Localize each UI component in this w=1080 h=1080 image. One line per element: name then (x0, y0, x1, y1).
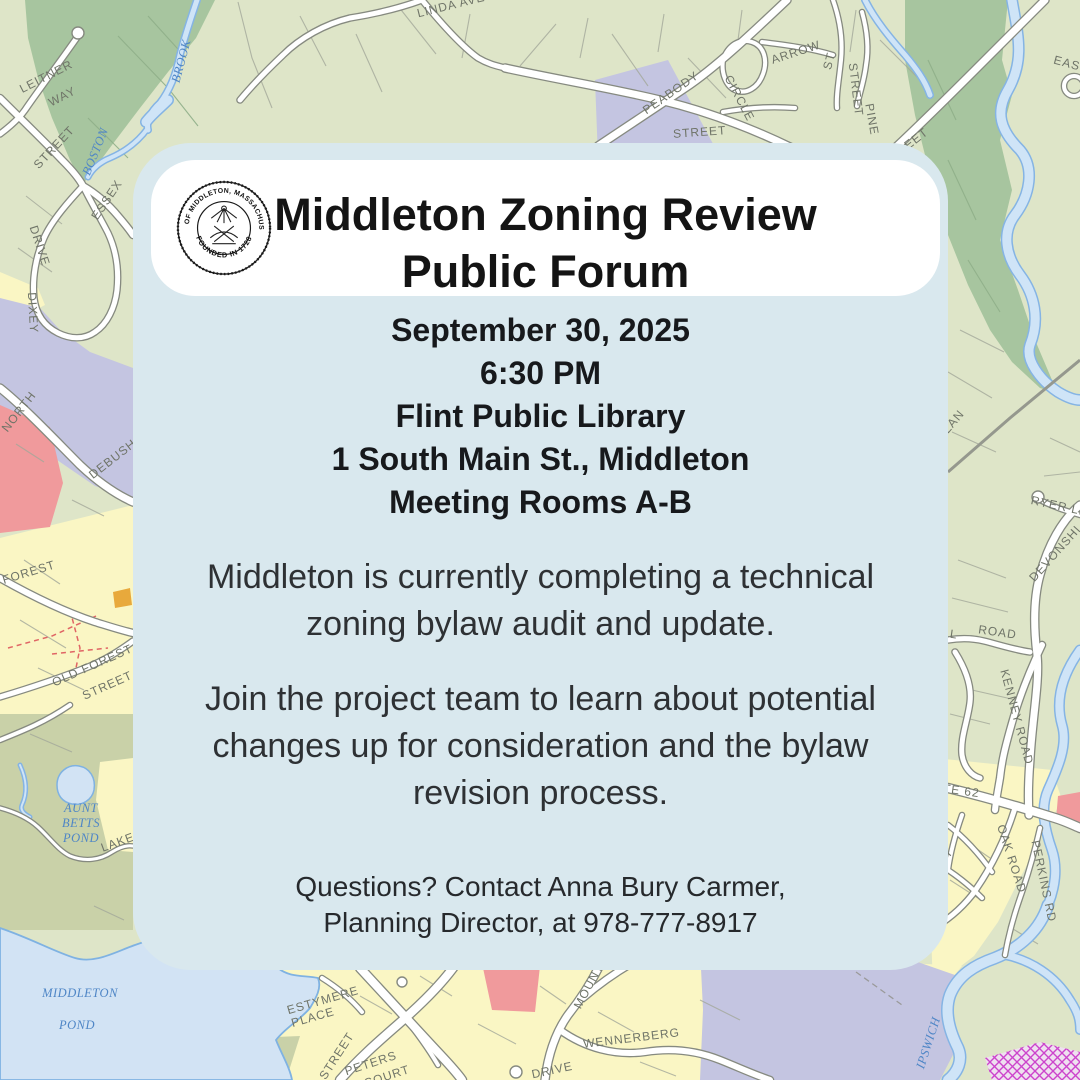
p2-line-1: Join the project team to learn about pot… (155, 676, 926, 723)
title-line-2: Public Forum (151, 243, 940, 300)
water-label: MIDDLETON (41, 986, 118, 1000)
body-paragraph-1: Middleton is currently completing a tech… (155, 554, 926, 648)
contact-line-1: Questions? Contact Anna Bury Carmer, (155, 869, 926, 905)
water-label: BETTS (62, 816, 100, 830)
event-details: September 30, 2025 6:30 PM Flint Public … (133, 309, 948, 524)
flyer: LEITNERWAYSTREETESSEXDRIVEDIXEYNORTHDEBU… (0, 0, 1080, 1080)
p1-line-2: zoning bylaw audit and update. (155, 601, 926, 648)
title-bar: TOWN OF MIDDLETON, MASSACHUSETTS FOUNDED… (151, 160, 940, 296)
p2-line-3: revision process. (155, 770, 926, 817)
page-title: Middleton Zoning Review Public Forum (151, 186, 940, 300)
event-venue: Flint Public Library (133, 395, 948, 438)
event-date: September 30, 2025 (133, 309, 948, 352)
street-label: DIXEY (25, 292, 41, 334)
event-room: Meeting Rooms A-B (133, 481, 948, 524)
event-time: 6:30 PM (133, 352, 948, 395)
title-line-1: Middleton Zoning Review (151, 186, 940, 243)
contact-info: Questions? Contact Anna Bury Carmer, Pla… (155, 869, 926, 941)
body-paragraph-2: Join the project team to learn about pot… (155, 676, 926, 817)
p2-line-2: changes up for consideration and the byl… (155, 723, 926, 770)
water-label: POND (62, 831, 99, 845)
water-label: AUNT (63, 801, 99, 815)
event-address: 1 South Main St., Middleton (133, 438, 948, 481)
contact-line-2: Planning Director, at 978-777-8917 (155, 905, 926, 941)
announcement-card: TOWN OF MIDDLETON, MASSACHUSETTS FOUNDED… (133, 143, 948, 970)
p1-line-1: Middleton is currently completing a tech… (155, 554, 926, 601)
water-label: POND (58, 1018, 95, 1032)
